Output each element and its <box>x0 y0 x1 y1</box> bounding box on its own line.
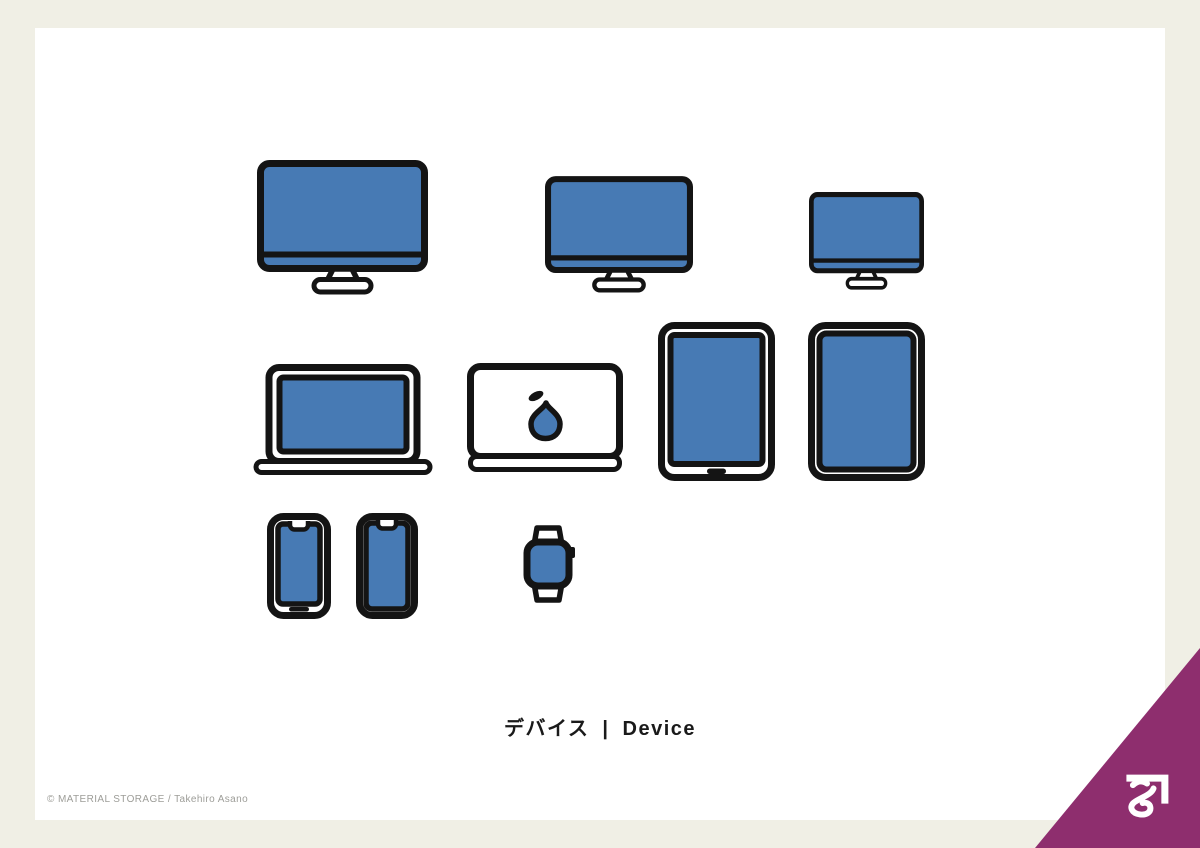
title-divider: | <box>602 718 609 740</box>
laptop-base <box>256 462 430 473</box>
tablet-home-button-svg <box>658 322 775 481</box>
tablet-bezelless-svg <box>808 322 925 481</box>
laptop-closed-icon <box>467 363 623 478</box>
smartwatch-icon <box>523 525 575 608</box>
phone-home-indicator-svg <box>267 513 331 619</box>
tablet-screen <box>671 335 763 464</box>
canvas-card: デバイス|Device © MATERIAL STORAGE / Takehir… <box>35 28 1165 820</box>
laptop-base <box>471 457 620 470</box>
monitor-stand-foot <box>594 280 643 291</box>
tablet-home-button-icon <box>658 322 775 486</box>
desktop-monitor-medium-icon <box>545 176 693 298</box>
laptop-open-icon <box>253 364 433 481</box>
laptop-closed-svg <box>467 363 623 473</box>
phone-notch <box>378 520 396 529</box>
phone-bezelless-icon <box>356 513 418 624</box>
phone-home-indicator-icon <box>267 513 331 624</box>
credit-text: © MATERIAL STORAGE / Takehiro Asano <box>47 794 248 805</box>
tablet-bezelless-icon <box>808 322 925 486</box>
desktop-monitor-large-icon <box>257 160 428 300</box>
laptop-screen <box>280 378 407 452</box>
monitor-stand-foot <box>314 280 371 293</box>
page-title: デバイス|Device <box>35 712 1165 741</box>
desktop-monitor-small-icon <box>809 192 924 295</box>
phone-screen <box>366 523 408 609</box>
home-indicator <box>289 607 309 612</box>
tablet-screen <box>820 334 914 470</box>
desktop-monitor-medium-svg <box>545 176 693 293</box>
watch-screen <box>527 542 569 586</box>
laptop-open-svg <box>253 364 433 476</box>
material-storage-logo-icon <box>1121 770 1173 822</box>
title-english: Device <box>623 718 697 740</box>
phone-bezelless-svg <box>356 513 418 619</box>
phone-screen <box>278 524 320 604</box>
monitor-stand-foot <box>847 279 885 288</box>
logo-so-glyph <box>1131 781 1153 814</box>
phone-notch <box>290 521 308 530</box>
title-japanese: デバイス <box>504 718 589 740</box>
desktop-monitor-large-svg <box>257 160 428 295</box>
smartwatch-svg <box>523 525 575 603</box>
desktop-monitor-small-svg <box>809 192 924 290</box>
home-button <box>707 469 726 475</box>
